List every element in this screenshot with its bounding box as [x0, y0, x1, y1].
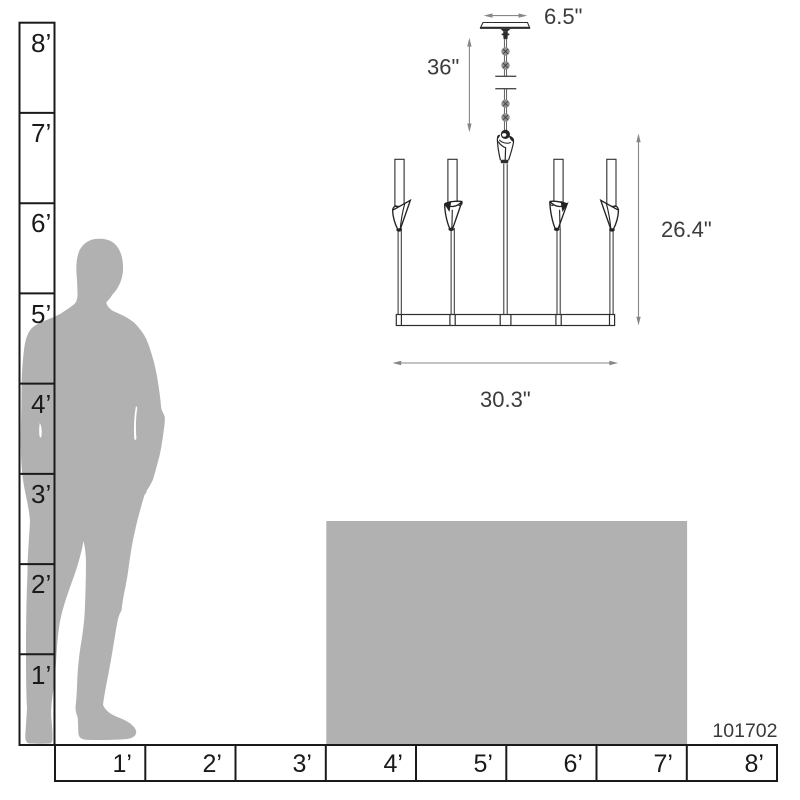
svg-text:3’: 3’ [293, 750, 312, 778]
svg-text:6’: 6’ [31, 208, 51, 238]
svg-text:2’: 2’ [31, 569, 51, 599]
svg-text:36": 36" [427, 55, 459, 80]
svg-text:1’: 1’ [113, 750, 132, 778]
svg-text:3’: 3’ [31, 479, 51, 509]
svg-text:30.3": 30.3" [480, 387, 531, 412]
svg-text:8’: 8’ [745, 750, 764, 778]
svg-text:6’: 6’ [564, 750, 583, 778]
svg-text:5’: 5’ [474, 750, 493, 778]
svg-text:1’: 1’ [31, 660, 51, 690]
svg-text:7’: 7’ [654, 750, 673, 778]
svg-text:101702: 101702 [712, 720, 777, 742]
svg-text:6.5": 6.5" [544, 4, 582, 29]
svg-text:5’: 5’ [31, 299, 51, 329]
svg-text:2’: 2’ [203, 750, 222, 778]
svg-text:7’: 7’ [31, 118, 51, 148]
svg-text:8’: 8’ [31, 28, 51, 58]
svg-text:4’: 4’ [31, 389, 51, 419]
svg-text:4’: 4’ [384, 750, 403, 778]
svg-text:26.4": 26.4" [661, 217, 712, 242]
